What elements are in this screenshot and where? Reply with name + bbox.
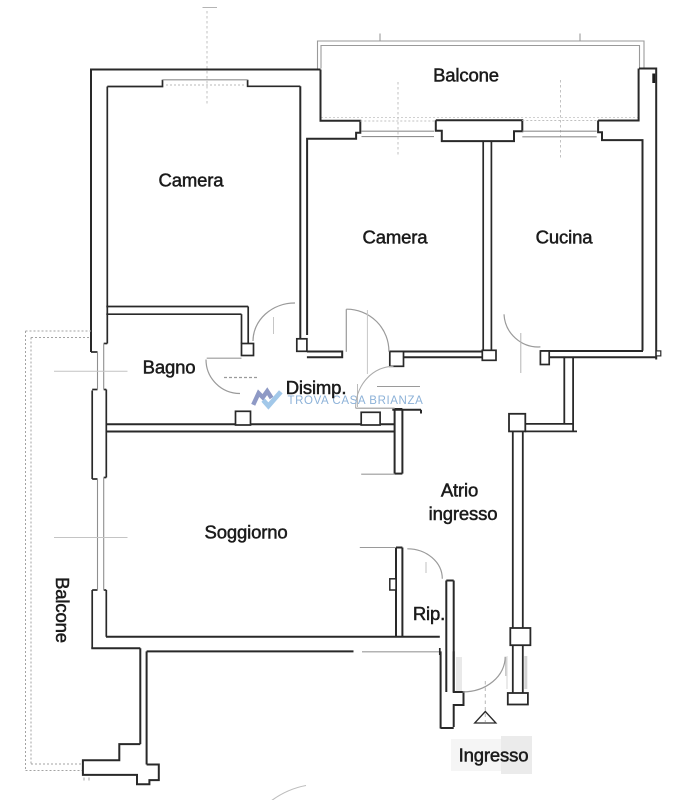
svg-text:Bagno: Bagno <box>143 357 196 378</box>
svg-text:ingresso: ingresso <box>429 503 498 524</box>
svg-text:Atrio: Atrio <box>441 479 478 500</box>
svg-text:Ingresso: Ingresso <box>459 744 529 765</box>
svg-text:Rip.: Rip. <box>413 603 445 624</box>
svg-text:Soggiorno: Soggiorno <box>205 522 288 543</box>
svg-text:Cucina: Cucina <box>536 227 594 248</box>
svg-text:Disimp.: Disimp. <box>286 377 347 398</box>
svg-text:Camera: Camera <box>363 227 429 248</box>
svg-text:Camera: Camera <box>159 170 225 191</box>
svg-text:Balcone: Balcone <box>52 577 73 643</box>
svg-text:Balcone: Balcone <box>433 65 499 86</box>
